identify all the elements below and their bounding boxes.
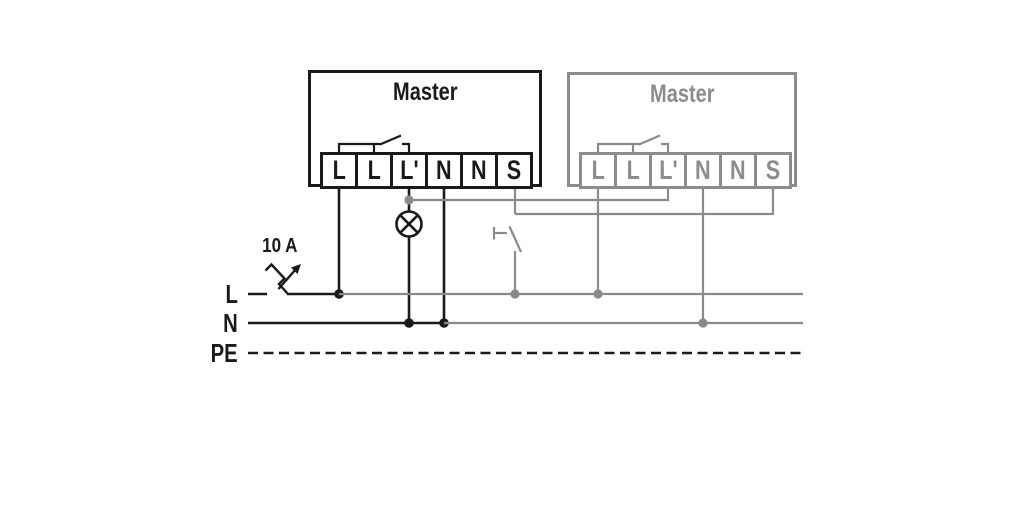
l-bus-label: L — [190, 280, 238, 308]
contact-blade-icon — [510, 227, 522, 253]
junction-dot — [593, 289, 602, 298]
gray-circuit — [339, 189, 803, 323]
circuit-breaker-icon — [266, 264, 302, 294]
terminal-cell: N — [425, 152, 463, 189]
terminal-cell: L' — [390, 152, 428, 189]
terminal-cell: N — [460, 152, 498, 189]
junction-dot — [334, 289, 344, 299]
junction-dot — [439, 318, 449, 328]
junction-dots-black — [334, 289, 449, 328]
junction-dot — [698, 318, 707, 327]
terminal-cell: L' — [649, 152, 687, 189]
junction-dot — [404, 195, 413, 204]
junction-dot — [404, 318, 414, 328]
terminal-cell: S — [754, 152, 792, 189]
terminal-cell: L — [579, 152, 617, 189]
master-2-terminal-strip: L L L' N N S — [579, 152, 792, 189]
terminal-cell: N — [684, 152, 722, 189]
terminal-cell: L — [320, 152, 358, 189]
wiring-diagram: Master L L L' N N S Master L L L' N N S … — [0, 0, 1016, 531]
push-button-icon — [494, 227, 521, 253]
terminal-cell: N — [719, 152, 757, 189]
junction-dot — [510, 289, 519, 298]
arrowhead — [291, 264, 301, 274]
terminal-cell: L — [614, 152, 652, 189]
terminal-cell: S — [495, 152, 533, 189]
terminal-cell: L — [355, 152, 393, 189]
master-2-title: Master — [570, 75, 794, 109]
pe-bus-label: PE — [190, 339, 238, 367]
wire-lamp-to-m2-Lprime — [409, 189, 668, 200]
junction-dots-gray — [404, 195, 707, 327]
master-1-title: Master — [311, 73, 539, 107]
black-circuit — [248, 189, 801, 353]
n-bus-label: N — [190, 309, 238, 337]
breaker-rating-label: 10 A — [254, 236, 306, 256]
wire-button-to-m2-S — [515, 189, 773, 214]
master-1-terminal-strip: L L L' N N S — [320, 152, 533, 189]
lamp-icon — [397, 212, 422, 237]
